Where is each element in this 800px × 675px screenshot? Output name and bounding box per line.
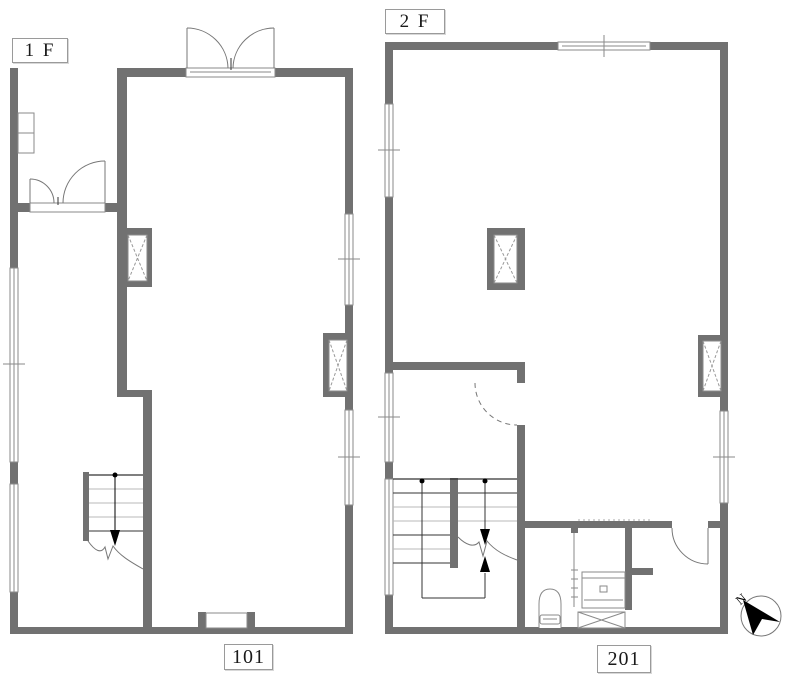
- floor1-shaft-right-icon: [329, 340, 347, 391]
- floor2-label: 2 F: [385, 9, 445, 34]
- floor2-toilet-sliding-door: [571, 533, 578, 607]
- floor1-cabinet: [18, 113, 34, 153]
- floor2-room-door-swing: [672, 528, 708, 564]
- north-arrow-icon: N: [733, 590, 781, 636]
- room-201-text: 201: [608, 648, 641, 671]
- floor1-stairs: [88, 473, 143, 570]
- floor2-windows: [385, 42, 728, 595]
- floor2-hall-door-swing: [475, 383, 517, 425]
- floor1-walls: [10, 68, 353, 634]
- stair-break-line: [458, 537, 517, 560]
- room-201-label: 201: [597, 645, 651, 673]
- floorplan-svg: N: [0, 0, 800, 675]
- toilet-icon: [539, 589, 561, 628]
- floor1-windows: [10, 68, 353, 628]
- floor1-window-mullions: [3, 72, 360, 592]
- duct-space-icon: [578, 612, 625, 628]
- floor2-window-mullions: [378, 35, 735, 595]
- floor2-shaft-right-icon: [703, 341, 721, 391]
- floor2-label-text: 2 F: [400, 11, 431, 33]
- stair-up-arrow-icon: [480, 556, 490, 572]
- sink-counter-icon: [582, 572, 625, 608]
- room-101-label: 101: [224, 644, 273, 670]
- floor2-shaft-center-icon: [487, 228, 525, 290]
- floor1-interior-double-door: [30, 161, 105, 205]
- floor1-label: 1 F: [12, 38, 68, 63]
- floor1-entrance-double-door: [187, 28, 274, 70]
- stair-break-line: [88, 541, 143, 569]
- room-101-text: 101: [232, 646, 265, 669]
- floor1-label-text: 1 F: [25, 40, 56, 62]
- floorplan-canvas: N 1 F 2 F 101 201: [0, 0, 800, 675]
- floor1-shaft-left-icon: [128, 235, 147, 281]
- stair-down-arrow-icon: [110, 530, 120, 546]
